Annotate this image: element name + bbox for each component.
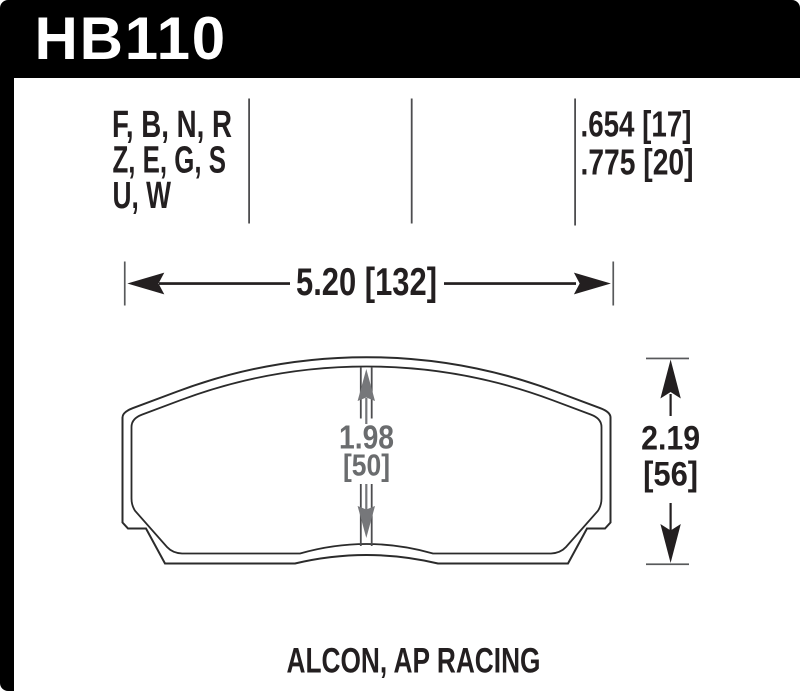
svg-text:HB110: HB110 — [35, 5, 227, 72]
svg-text:2.19: 2.19 — [641, 420, 700, 458]
svg-text:.654 [17]: .654 [17] — [581, 103, 692, 144]
svg-text:5.20 [132]: 5.20 [132] — [296, 261, 437, 304]
svg-text:ALCON, AP RACING: ALCON, AP RACING — [287, 641, 541, 680]
svg-text:.775 [20]: .775 [20] — [581, 142, 694, 183]
svg-text:[56]: [56] — [643, 456, 698, 494]
svg-text:U, W: U, W — [113, 175, 172, 217]
svg-text:[50]: [50] — [343, 448, 390, 483]
